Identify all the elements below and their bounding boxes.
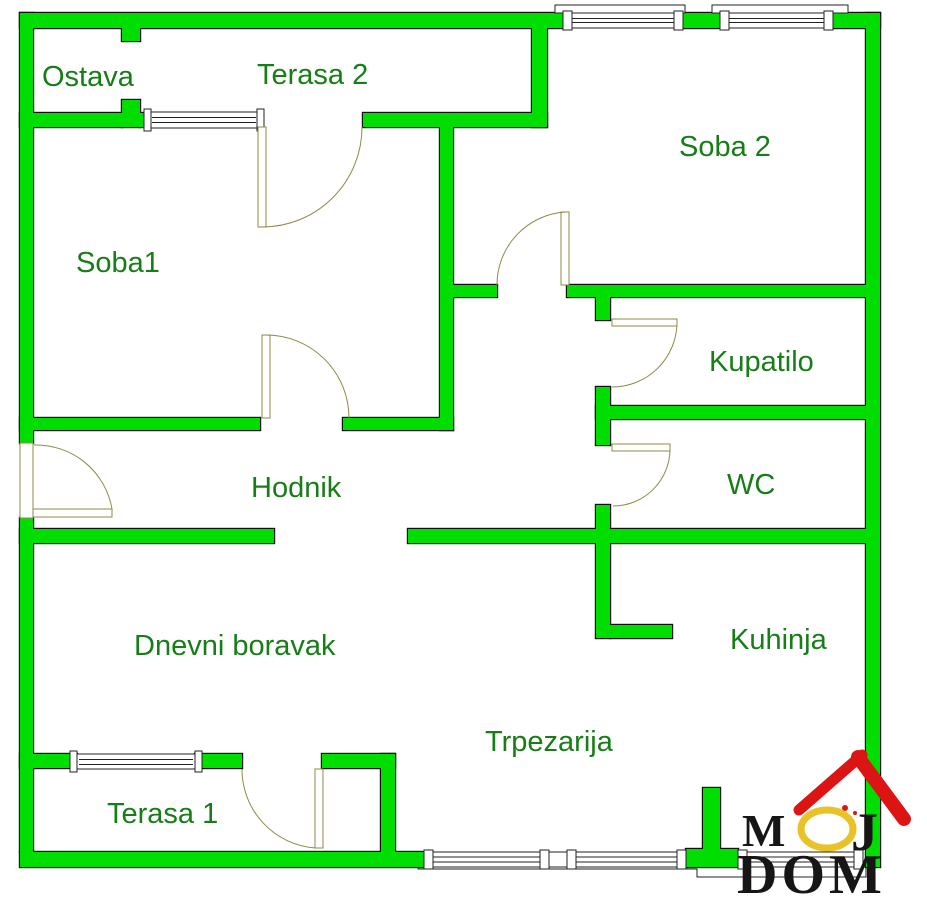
wall-segment	[122, 100, 140, 127]
door-leaf	[612, 444, 670, 451]
window-end-cap	[424, 850, 433, 869]
door-leaf	[33, 509, 112, 517]
wall-segment	[567, 285, 866, 297]
wall-segment	[20, 13, 570, 28]
room-label-terasa-2: Terasa 2	[257, 59, 368, 91]
wall-segment	[453, 285, 497, 297]
window-band	[570, 13, 683, 28]
room-label-dnevni-boravak: Dnevni boravak	[134, 630, 336, 662]
wall-segment	[686, 849, 738, 867]
wall-segment	[343, 418, 453, 430]
door-leaf	[561, 212, 569, 285]
room-label-trpezarija: Trpezarija	[485, 726, 614, 758]
wall-segment	[866, 13, 880, 867]
window-band	[433, 852, 540, 867]
window-band	[720, 13, 833, 28]
wall-segment	[20, 418, 260, 430]
window-end-cap	[677, 850, 686, 869]
wall-segment	[20, 518, 33, 852]
door-swing-arc	[262, 127, 362, 227]
door-swing-arc	[242, 769, 315, 848]
room-label-ostava: Ostava	[42, 61, 135, 93]
wall-segment	[683, 13, 720, 28]
door-leaf	[315, 769, 323, 848]
door-swing-arc	[497, 212, 565, 285]
window-end-cap	[70, 751, 77, 772]
window-end-cap	[720, 11, 729, 30]
wall-segment	[703, 788, 720, 852]
window-end-cap	[674, 11, 683, 30]
room-label-soba-2: Soba 2	[679, 131, 771, 163]
door-swing-arc	[34, 445, 112, 509]
wall-segment	[20, 852, 424, 867]
room-label-soba1: Soba1	[76, 247, 160, 279]
wall-segment	[20, 13, 33, 443]
wall-segment	[610, 625, 672, 638]
door-frame	[20, 443, 33, 518]
room-labels: Ostava Terasa 2 Soba 2 Soba1 Kupatilo Ho…	[42, 59, 828, 830]
wall-segment	[20, 529, 274, 543]
window-band	[150, 112, 258, 128]
window-end-cap	[195, 751, 202, 772]
window-end-cap	[563, 11, 572, 30]
wall-segment	[381, 754, 395, 852]
wall-segment	[20, 113, 122, 127]
logo-word-dom: DOM	[737, 844, 886, 900]
wall-segment	[596, 406, 866, 419]
wall-segment	[408, 529, 866, 543]
door-swing-arc	[613, 449, 670, 506]
room-label-terasa-1: Terasa 1	[107, 798, 218, 830]
wall-segment	[363, 113, 547, 127]
floor-plan-canvas: Ostava Terasa 2 Soba 2 Soba1 Kupatilo Ho…	[0, 0, 927, 900]
door-leaf	[262, 335, 270, 418]
window-end-cap	[567, 850, 576, 869]
wall-segment	[596, 297, 610, 320]
logo-letter-o-ring-icon	[801, 810, 853, 848]
window-end-cap	[824, 11, 833, 30]
wall-segment	[20, 754, 77, 768]
room-label-kuhinja: Kuhinja	[730, 624, 828, 656]
wall-segment	[596, 505, 610, 638]
window-end-cap	[144, 109, 151, 131]
wall-segment	[532, 28, 547, 127]
wall-segment	[440, 127, 453, 430]
window-band	[576, 852, 677, 867]
window-band	[77, 754, 195, 769]
door-swing-arc	[612, 324, 677, 387]
room-label-hodnik: Hodnik	[251, 472, 342, 504]
wall-segment	[122, 28, 140, 41]
room-label-wc: WC	[727, 469, 775, 501]
room-label-kupatilo: Kupatilo	[709, 346, 814, 378]
window-sill	[555, 5, 685, 13]
door-swing-arc	[266, 335, 349, 418]
door-leaf	[612, 319, 677, 326]
door-leaf	[258, 127, 266, 227]
window-band	[549, 852, 567, 867]
floor-plan: Ostava Terasa 2 Soba 2 Soba1 Kupatilo Ho…	[0, 0, 927, 900]
window-end-cap	[540, 850, 549, 869]
